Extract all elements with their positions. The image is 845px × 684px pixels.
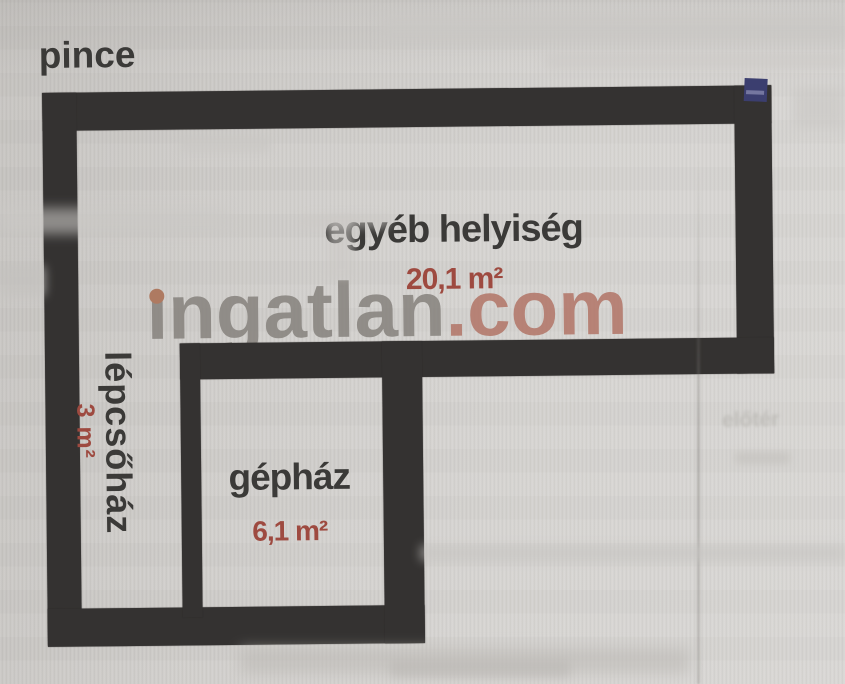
wall-top <box>42 85 771 131</box>
plan-title: pince <box>39 34 136 78</box>
wall-egyeb-bottom <box>180 337 774 379</box>
room-label-lepcsohaz: lépcsőház <box>97 351 141 581</box>
watermark-i-dot <box>149 289 164 304</box>
room-area-lepcsohaz: 3 m² <box>70 403 100 493</box>
floorplan-photo: előtér pince ıngatlan.com egyéb helyiség… <box>0 0 845 684</box>
room-label-gephaz: gépház <box>189 455 389 500</box>
sticker-sheen <box>746 90 764 95</box>
room-area-egyeb-helyiseg: 20,1 m² <box>354 262 554 299</box>
room-area-gephaz: 6,1 m² <box>210 515 370 549</box>
basement-floorplan: pince ıngatlan.com egyéb helyiség 20,1 m… <box>0 0 845 684</box>
room-label-egyeb-helyiseg: egyéb helyiség <box>253 207 653 255</box>
blue-corner-sticker <box>744 78 768 102</box>
wall-left <box>42 93 82 646</box>
wall-right <box>734 85 774 373</box>
wall-bottom <box>48 605 425 647</box>
